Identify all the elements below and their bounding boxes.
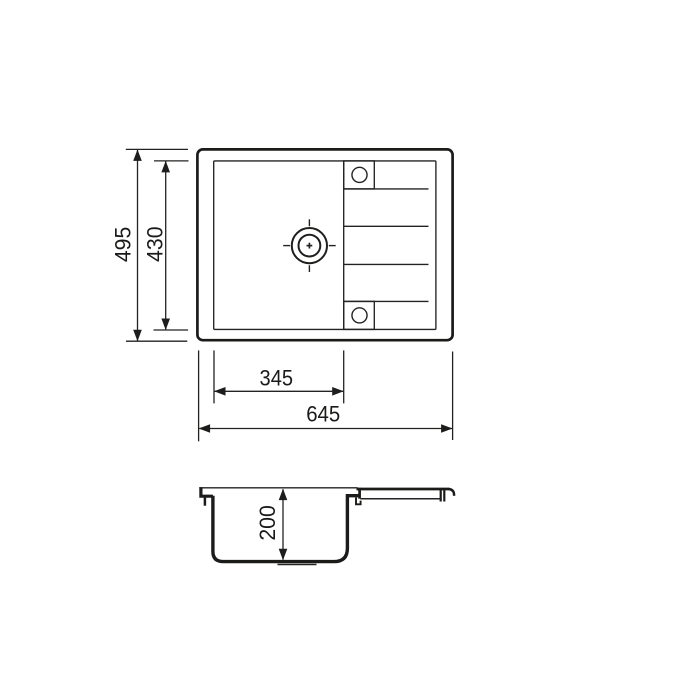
svg-text:430: 430 [142,226,167,262]
svg-text:645: 645 [306,401,340,426]
svg-text:495: 495 [111,227,136,263]
svg-text:200: 200 [255,505,280,541]
svg-text:345: 345 [260,366,294,391]
